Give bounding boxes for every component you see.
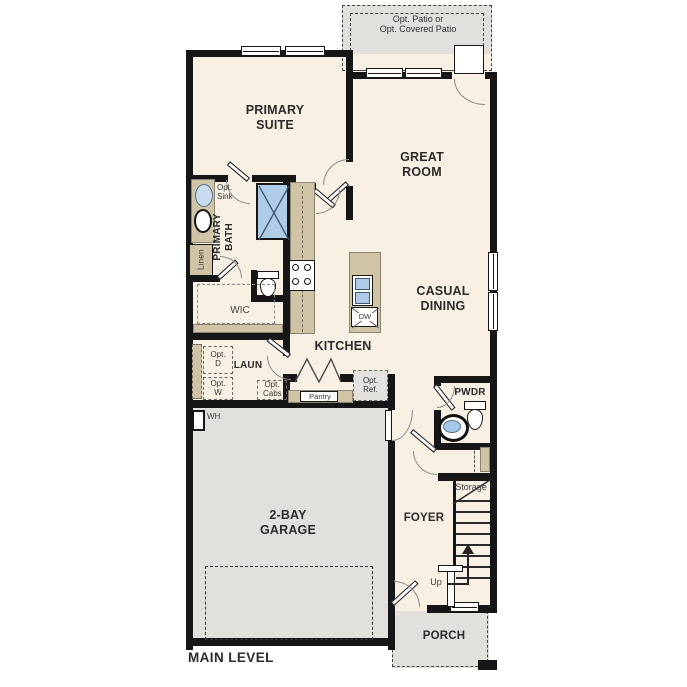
opt-patio-label: Opt. Patio or Opt. Covered Patio xyxy=(352,15,484,35)
optional-refrigerator-label: Opt. Ref. xyxy=(360,377,382,395)
wall xyxy=(388,441,395,650)
garage-entry-door xyxy=(385,410,392,441)
window xyxy=(285,46,325,56)
closet-dashed-line xyxy=(474,451,476,472)
window xyxy=(488,292,498,331)
optional-cabinets-box: Opt. Cabs xyxy=(257,380,287,400)
room-label-laundry: LAUN xyxy=(226,360,270,372)
sink-basin xyxy=(355,292,370,304)
wall xyxy=(252,175,296,182)
dishwasher-fixture: DW xyxy=(351,307,378,327)
up-arrow-icon xyxy=(462,544,474,554)
sink-fixture xyxy=(194,209,212,233)
sink-basin xyxy=(355,278,370,290)
wall xyxy=(346,52,353,162)
room-label-foyer: FOYER xyxy=(392,512,456,526)
floor-plan: DW Pantry Opt. D Opt. W Opt. Cabs Opt. R… xyxy=(0,0,687,687)
laundry-counter xyxy=(192,344,202,399)
water-heater-label: WH xyxy=(207,413,227,422)
room-label-porch: PORCH xyxy=(412,630,476,644)
room-label-garage: 2-BAY GARAGE xyxy=(248,508,328,538)
room-label-kitchen: KITCHEN xyxy=(303,339,383,354)
window xyxy=(241,46,281,56)
opt-sink-label: Opt. Sink xyxy=(217,184,241,202)
room-label-powder: PWDR xyxy=(445,387,495,399)
stair-tread xyxy=(456,555,490,557)
stair-tread xyxy=(456,522,490,524)
stair-railing xyxy=(447,571,455,607)
wall xyxy=(186,333,290,340)
optional-cabinets-label: Opt. Cabs xyxy=(263,381,281,399)
optional-washer-box: Opt. W xyxy=(203,377,233,400)
burner xyxy=(292,278,299,285)
water-heater-fixture xyxy=(192,410,205,431)
optional-refrigerator-box: Opt. Ref. xyxy=(353,370,388,401)
optional-washer-label: Opt. W xyxy=(209,380,227,398)
room-label-primary-suite: PRIMARY SUITE xyxy=(237,103,313,133)
burner xyxy=(304,278,311,285)
burner xyxy=(304,264,311,271)
window xyxy=(405,68,442,78)
upper-cabinet-dashed-line xyxy=(302,186,304,332)
wall xyxy=(490,72,497,612)
pantry-label-box: Pantry xyxy=(300,391,338,402)
wic-shelving-dashed xyxy=(197,284,275,324)
level-title: MAIN LEVEL xyxy=(188,650,298,666)
stair-tread xyxy=(456,500,490,502)
room-label-linen: Linen xyxy=(196,242,205,278)
pantry-label: Pantry xyxy=(301,393,339,401)
window xyxy=(366,68,403,78)
room-label-storage: Storage xyxy=(448,483,494,493)
opt-patio-line2: Opt. Covered Patio xyxy=(352,25,484,35)
stair-tread xyxy=(456,577,490,579)
room-label-primary-bath: PRIMARY BATH xyxy=(212,200,236,274)
stair-direction-line xyxy=(448,583,469,585)
room-label-wic: WIC xyxy=(215,305,265,316)
wall xyxy=(434,376,497,383)
room-label-great-room: GREAT ROOM xyxy=(389,150,455,180)
dishwasher-label: DW xyxy=(356,313,374,321)
optional-dryer-label: Opt. D xyxy=(209,351,227,369)
patio-door xyxy=(454,45,484,74)
stair-tread xyxy=(456,533,490,535)
garage-door-dashed xyxy=(205,566,373,640)
stair-tread xyxy=(456,511,490,513)
powder-sink-basin xyxy=(443,420,461,433)
optional-sink-fixture xyxy=(195,184,213,207)
closet-shelf xyxy=(480,447,490,472)
shower-fixture xyxy=(256,183,289,240)
room-label-casual-dining: CASUAL DINING xyxy=(408,284,478,314)
cased-opening-zigzag xyxy=(294,357,342,383)
burner xyxy=(292,264,299,271)
stairs-up-label: Up xyxy=(426,578,446,588)
porch-corner-block xyxy=(478,660,497,670)
window xyxy=(488,252,498,291)
wic-shelf xyxy=(193,324,283,333)
stair-direction-line xyxy=(467,552,469,585)
wall xyxy=(346,186,353,220)
